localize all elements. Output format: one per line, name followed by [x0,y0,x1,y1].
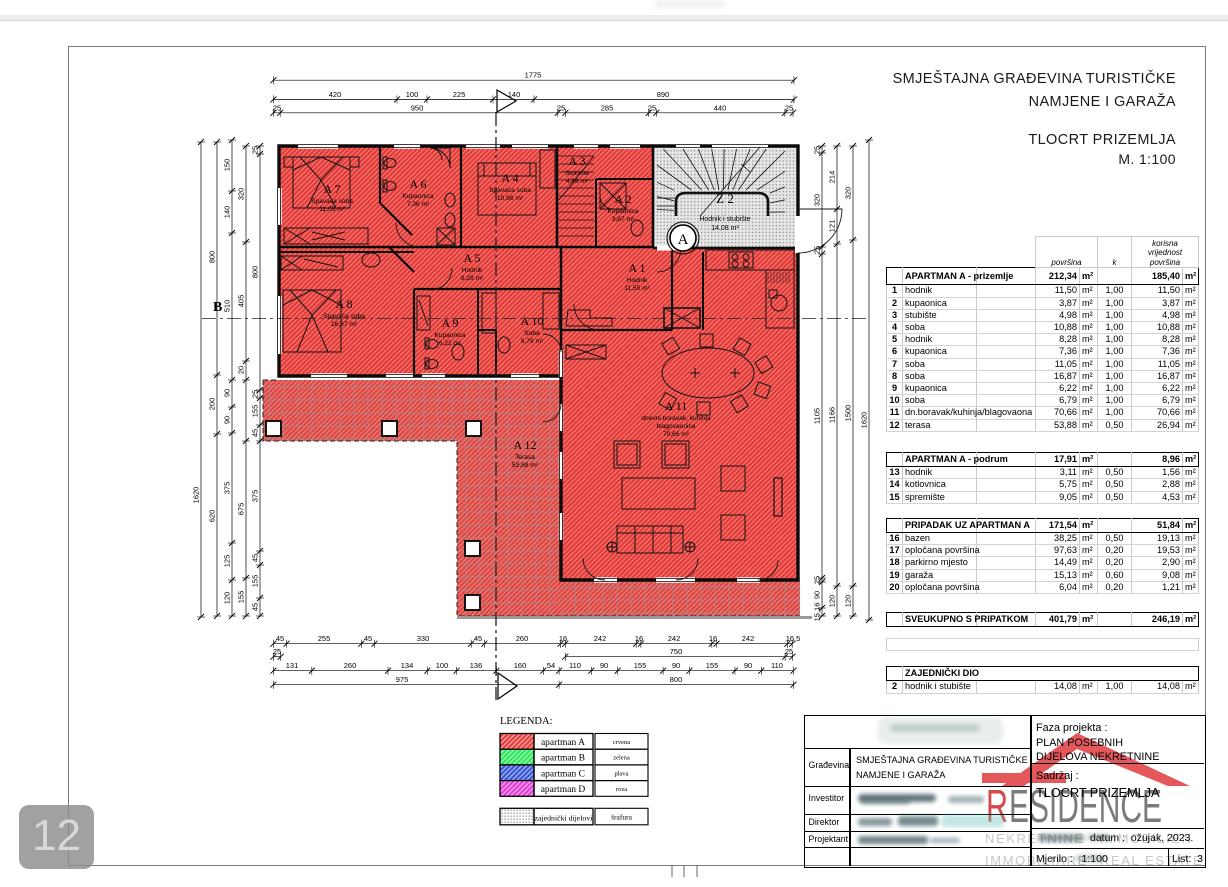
svg-text:200: 200 [208,398,217,411]
svg-text:90: 90 [672,661,680,670]
svg-text:roza: roza [616,786,627,793]
svg-text:zajednički dijelovi: zajednički dijelovi [535,813,594,822]
svg-text:1166: 1166 [828,407,837,423]
svg-text:apartman C: apartman C [541,769,585,779]
svg-text:A: A [678,232,689,248]
svg-text:Soba: Soba [524,330,540,337]
svg-text:285: 285 [601,103,614,112]
svg-text:6,79 m²: 6,79 m² [521,338,544,345]
svg-text:25: 25 [785,647,793,656]
svg-text:242: 242 [742,634,755,643]
svg-text:160: 160 [514,661,527,670]
svg-text:320: 320 [844,187,853,200]
svg-text:45: 45 [251,429,260,437]
svg-text:25: 25 [557,103,565,112]
svg-text:A 6: A 6 [409,177,426,191]
svg-text:45: 45 [474,634,482,643]
svg-text:1500: 1500 [844,405,853,422]
svg-text:A 12: A 12 [513,438,536,452]
svg-text:Hodnik: Hodnik [627,277,648,284]
svg-text:dnevni boravak, kuhinja: dnevni boravak, kuhinja [641,415,711,422]
svg-text:225: 225 [453,90,466,99]
svg-text:110: 110 [569,661,581,670]
svg-text:320: 320 [237,188,246,201]
svg-text:125: 125 [223,555,232,568]
svg-text:16,87 m²: 16,87 m² [331,321,358,328]
svg-text:140: 140 [508,90,521,99]
svg-text:440: 440 [714,103,727,112]
svg-text:800: 800 [251,266,260,279]
svg-text:53,88 m²: 53,88 m² [512,462,539,469]
svg-text:plava: plava [614,770,628,777]
svg-text:90: 90 [223,416,232,424]
svg-text:45: 45 [276,634,284,643]
svg-text:800: 800 [208,251,217,264]
svg-text:1775: 1775 [525,71,542,80]
svg-text:950: 950 [411,103,424,112]
svg-text:zelena: zelena [613,755,630,762]
svg-text:25: 25 [813,576,822,584]
svg-text:134: 134 [401,661,414,670]
svg-text:3,87 m²: 3,87 m² [612,216,635,223]
svg-text:110: 110 [771,661,783,670]
svg-text:8,28 m²: 8,28 m² [461,275,484,282]
svg-text:15,16: 15,16 [813,603,822,622]
svg-text:150: 150 [223,159,232,172]
svg-text:136: 136 [470,661,483,670]
svg-text:100: 100 [436,661,449,670]
svg-text:975: 975 [396,675,409,684]
svg-text:45: 45 [251,603,260,611]
svg-text:25: 25 [251,146,260,154]
svg-text:16: 16 [559,634,567,643]
svg-text:320: 320 [813,194,822,207]
svg-text:A 4: A 4 [501,171,518,185]
svg-text:7,36 m²: 7,36 m² [407,201,430,208]
svg-text:20: 20 [237,366,246,374]
svg-text:Hodnik i stubište: Hodnik i stubište [699,216,750,223]
svg-text:70,66 m²: 70,66 m² [663,431,690,438]
svg-text:155: 155 [237,591,246,604]
svg-text:25: 25 [813,146,822,154]
svg-text:90: 90 [813,591,822,599]
svg-text:A 8: A 8 [335,297,352,311]
svg-text:242: 242 [594,634,607,643]
svg-text:260: 260 [516,634,529,643]
svg-text:Kupaonica: Kupaonica [607,208,638,215]
svg-text:675: 675 [237,503,246,516]
svg-text:A 1: A 1 [628,261,645,275]
svg-text:Stubište: Stubište [565,170,589,177]
svg-text:45: 45 [251,554,260,562]
svg-text:1620: 1620 [860,412,869,429]
svg-text:16: 16 [709,634,717,643]
svg-text:crvena: crvena [613,739,630,746]
svg-text:apartman B: apartman B [541,754,585,764]
svg-text:1105: 1105 [813,408,822,424]
svg-text:131: 131 [286,661,299,670]
svg-text:A 7: A 7 [323,182,340,196]
svg-text:Z 2: Z 2 [716,191,734,206]
svg-text:apartman A: apartman A [541,738,585,748]
svg-text:Terasa: Terasa [515,454,535,461]
svg-text:155: 155 [634,661,647,670]
svg-text:330: 330 [417,634,430,643]
svg-text:Spavaća soba: Spavaća soba [323,313,365,320]
svg-text:120: 120 [223,592,232,605]
svg-text:A 3: A 3 [568,154,585,168]
svg-text:Kupaonica: Kupaonica [434,332,465,339]
svg-text:šrafura: šrafura [611,812,632,821]
svg-text:apartman D: apartman D [541,785,586,795]
svg-text:90: 90 [600,661,608,670]
svg-text:100: 100 [406,90,419,99]
svg-text:11,50 m²: 11,50 m² [624,285,650,292]
svg-text:A 11: A 11 [665,399,688,413]
svg-text:405: 405 [237,295,246,308]
svg-text:121: 121 [828,220,837,233]
svg-text:6,22 m²: 6,22 m² [439,340,462,347]
svg-text:120: 120 [828,595,837,608]
svg-text:25: 25 [785,103,793,112]
svg-text:155: 155 [251,575,260,588]
svg-text:14,08 m²: 14,08 m² [711,225,739,232]
svg-text:25: 25 [273,647,281,656]
svg-text:375: 375 [251,490,260,503]
svg-text:Spavaća soba: Spavaća soba [311,198,353,205]
svg-text:510: 510 [223,300,232,313]
svg-text:1620: 1620 [192,487,201,504]
svg-text:25: 25 [648,103,656,112]
svg-text:blagovaonica: blagovaonica [657,423,696,430]
svg-text:Kupaonica: Kupaonica [402,193,433,200]
svg-text:260: 260 [344,661,357,670]
svg-text:25: 25 [251,390,260,398]
svg-text:375: 375 [223,482,232,495]
svg-text:4,98 m²: 4,98 m² [566,178,589,185]
svg-text:155: 155 [251,405,260,418]
svg-text:140: 140 [223,206,232,219]
svg-text:Hodnik: Hodnik [462,267,483,274]
svg-text:16,5: 16,5 [786,634,801,643]
svg-text:255: 255 [318,634,331,643]
svg-text:120: 120 [844,595,853,608]
svg-text:A 5: A 5 [463,251,480,265]
svg-text:800: 800 [670,675,683,684]
svg-text:890: 890 [657,90,670,99]
svg-text:11,05 m²: 11,05 m² [319,206,345,213]
svg-text:10,96 m²: 10,96 m² [497,195,524,202]
svg-text:A 2: A 2 [614,192,631,206]
svg-text:420: 420 [329,90,342,99]
svg-text:90: 90 [744,661,752,670]
svg-text:620: 620 [208,510,217,523]
svg-text:25: 25 [273,103,281,112]
svg-text:45: 45 [364,634,372,643]
svg-text:155: 155 [706,661,719,670]
svg-text:54: 54 [547,661,555,670]
svg-text:25: 25 [813,246,822,254]
svg-text:750: 750 [670,647,683,656]
svg-text:214: 214 [828,171,837,184]
svg-text:B: B [213,300,222,315]
svg-text:A 10: A 10 [520,314,543,328]
svg-text:90: 90 [223,389,232,397]
svg-text:242: 242 [668,634,681,643]
svg-text:16: 16 [635,634,643,643]
